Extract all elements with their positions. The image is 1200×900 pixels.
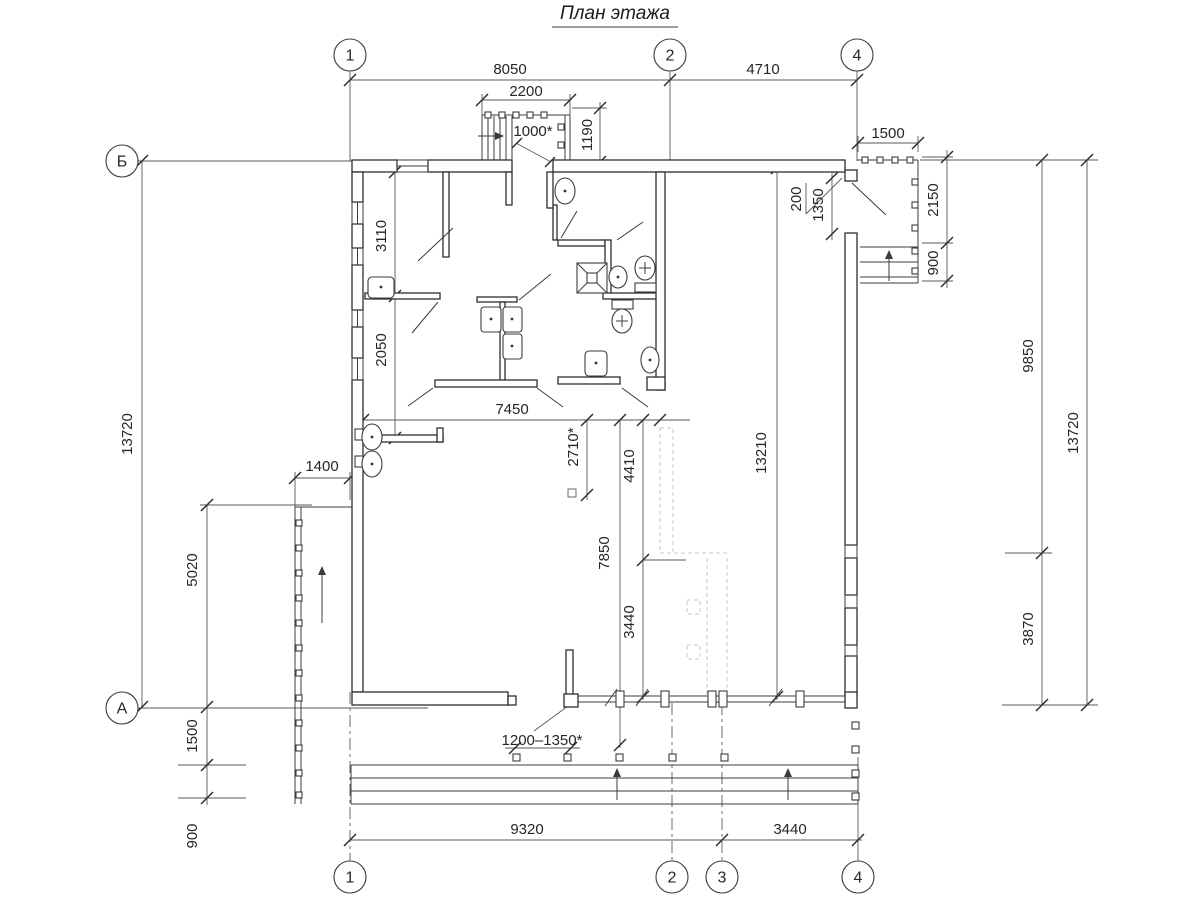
axis-label-bottom-1: 1 bbox=[346, 870, 355, 887]
dim-label-1000: 1000* bbox=[513, 123, 552, 140]
sink-icon bbox=[609, 266, 627, 288]
axis-label-left-a: А bbox=[117, 701, 128, 718]
dim-label-1190: 1190 bbox=[579, 119, 596, 151]
page-title: План этажа bbox=[560, 3, 670, 24]
dim-label-right-13720: 13720 bbox=[1065, 412, 1082, 454]
dim-label-9850: 9850 bbox=[1020, 339, 1037, 372]
dim-label-2200: 2200 bbox=[509, 83, 542, 100]
dim-label-4410: 4410 bbox=[621, 449, 638, 482]
dim-label-9320: 9320 bbox=[510, 821, 543, 838]
axis-label-left-b: Б bbox=[117, 154, 128, 171]
toilet-icon bbox=[612, 300, 633, 333]
dim-label-porch-1500: 1500 bbox=[871, 125, 904, 142]
sink-icon bbox=[585, 351, 607, 376]
dim-label-1200-1350: 1200–1350* bbox=[502, 732, 583, 749]
dim-label-left-13720: 13720 bbox=[119, 413, 136, 455]
sink-icon bbox=[555, 178, 575, 204]
dim-label-3870: 3870 bbox=[1020, 612, 1037, 645]
dim-label-5020: 5020 bbox=[184, 553, 201, 586]
dim-label-2710: 2710* bbox=[565, 427, 582, 466]
dim-label-7450: 7450 bbox=[495, 401, 528, 418]
dim-label-porch-900: 900 bbox=[925, 250, 942, 275]
floor-plan-canvas: План этажа bbox=[0, 0, 1200, 900]
ghost-elements bbox=[660, 428, 727, 694]
sink-icon bbox=[641, 347, 659, 373]
bottom-deck bbox=[351, 722, 859, 804]
floor-plan-page: План этажа bbox=[0, 0, 1200, 900]
dim-label-4710: 4710 bbox=[746, 61, 779, 78]
axis-label-bottom-4: 4 bbox=[854, 870, 863, 887]
dim-label-1350: 1350 bbox=[810, 188, 827, 221]
dim-label-left-1500: 1500 bbox=[184, 719, 201, 752]
toilet-icon bbox=[635, 256, 656, 292]
axis-label-top-1: 1 bbox=[346, 48, 355, 65]
shower-icon bbox=[577, 263, 607, 293]
dim-label-2050: 2050 bbox=[373, 333, 390, 366]
axis-label-top-2: 2 bbox=[666, 48, 675, 65]
windows bbox=[352, 160, 857, 656]
dim-label-13210: 13210 bbox=[753, 432, 770, 474]
dimension-lines bbox=[142, 80, 1098, 840]
dim-label-1400: 1400 bbox=[305, 458, 338, 475]
dim-label-3110: 3110 bbox=[373, 220, 390, 252]
axis-label-bottom-2: 2 bbox=[668, 870, 677, 887]
left-ramp bbox=[295, 507, 352, 804]
veranda-wall bbox=[578, 689, 857, 708]
dim-label-200: 200 bbox=[788, 186, 805, 211]
dim-label-2150: 2150 bbox=[925, 183, 942, 216]
dim-label-left-900: 900 bbox=[184, 823, 201, 848]
drawing-title: План этажа bbox=[552, 3, 678, 27]
axis-label-bottom-3: 3 bbox=[718, 870, 727, 887]
axis-label-top-4: 4 bbox=[853, 48, 862, 65]
dimension-labels: 8050 4710 2200 1000* 1190 1500 2150 900 … bbox=[119, 61, 1082, 849]
dimension-ticks bbox=[136, 74, 1093, 846]
dim-label-mid-3440: 3440 bbox=[621, 605, 638, 638]
dim-label-bottom-3440: 3440 bbox=[773, 821, 806, 838]
dim-label-7850: 7850 bbox=[596, 536, 613, 569]
dim-label-8050: 8050 bbox=[493, 61, 526, 78]
sink-icon bbox=[368, 277, 394, 298]
right-porch-stairs bbox=[857, 157, 918, 283]
axis-grid-lines bbox=[138, 71, 858, 861]
